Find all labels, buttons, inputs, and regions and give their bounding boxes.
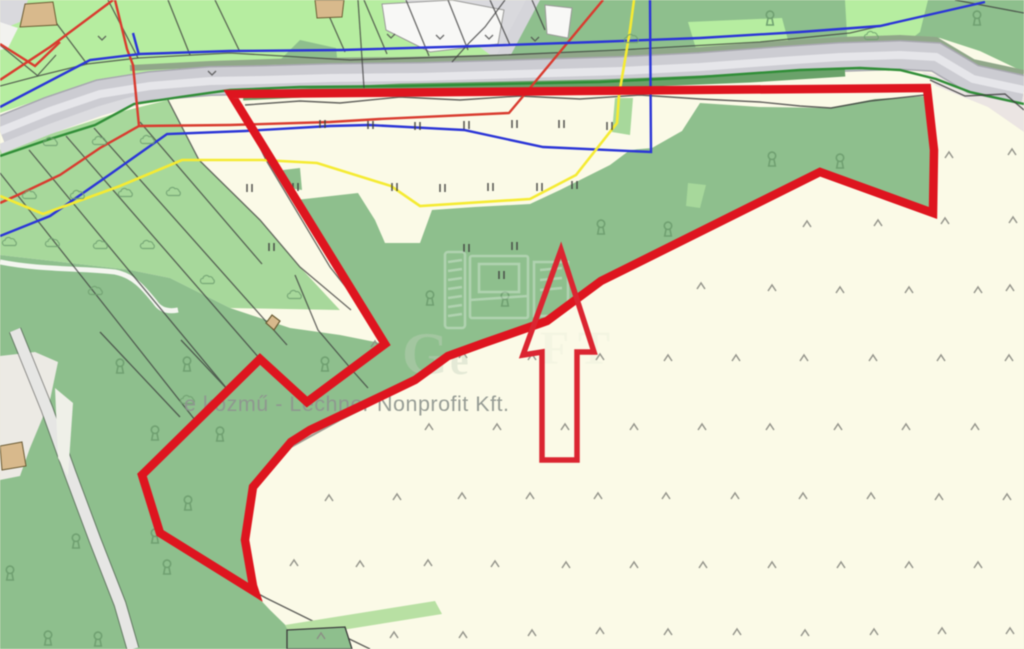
svg-text:e: e	[450, 338, 469, 384]
